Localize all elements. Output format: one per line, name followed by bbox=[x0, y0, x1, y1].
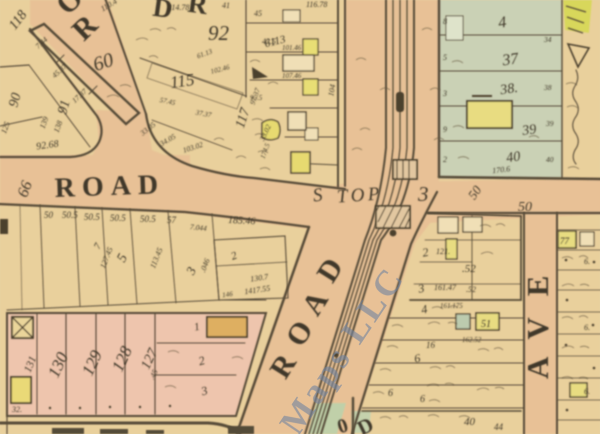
svg-text:5: 5 bbox=[443, 53, 447, 62]
svg-text:170.6: 170.6 bbox=[492, 164, 511, 175]
svg-text:.52: .52 bbox=[462, 263, 476, 275]
svg-text:51: 51 bbox=[481, 319, 491, 330]
svg-text:50.5: 50.5 bbox=[140, 214, 156, 224]
svg-text:AVE: AVE bbox=[520, 255, 555, 379]
svg-text:50.5: 50.5 bbox=[110, 213, 126, 223]
svg-text:107.46: 107.46 bbox=[282, 72, 302, 80]
svg-text:TOP: TOP bbox=[336, 183, 383, 207]
svg-text:39: 39 bbox=[520, 122, 537, 139]
svg-text:38.: 38. bbox=[498, 81, 518, 98]
svg-text:7.044: 7.044 bbox=[190, 222, 208, 233]
svg-text:16: 16 bbox=[426, 340, 436, 350]
svg-text:40: 40 bbox=[546, 155, 554, 164]
svg-text:8: 8 bbox=[443, 17, 447, 26]
svg-text:9: 9 bbox=[443, 125, 447, 134]
svg-text:43.5: 43.5 bbox=[262, 37, 276, 46]
svg-text:6.: 6. bbox=[584, 323, 590, 332]
svg-text:39: 39 bbox=[545, 119, 554, 128]
svg-text:45: 45 bbox=[254, 9, 262, 18]
svg-text:161.175: 161.175 bbox=[440, 302, 463, 310]
svg-text:3: 3 bbox=[442, 89, 447, 98]
svg-text:6: 6 bbox=[388, 388, 393, 399]
svg-text:95.5: 95.5 bbox=[250, 94, 263, 102]
svg-text:185.46: 185.46 bbox=[228, 215, 256, 227]
svg-text:38: 38 bbox=[543, 83, 552, 92]
svg-text:32.: 32. bbox=[11, 405, 22, 414]
svg-text:50: 50 bbox=[518, 200, 532, 215]
svg-text:6.: 6. bbox=[584, 257, 590, 266]
svg-text:40: 40 bbox=[464, 416, 476, 428]
svg-text:161.47: 161.47 bbox=[434, 283, 457, 292]
svg-text:50.5: 50.5 bbox=[84, 212, 100, 222]
svg-text:50.5: 50.5 bbox=[62, 210, 78, 220]
svg-text:2: 2 bbox=[443, 155, 447, 164]
svg-text:3: 3 bbox=[417, 182, 429, 206]
svg-text:92: 92 bbox=[208, 21, 230, 45]
svg-text:44: 44 bbox=[494, 422, 504, 432]
svg-text:77: 77 bbox=[560, 236, 570, 246]
svg-text:146: 146 bbox=[222, 290, 234, 299]
svg-text:115: 115 bbox=[169, 70, 196, 92]
svg-text:.52: .52 bbox=[466, 285, 476, 294]
svg-text:41: 41 bbox=[222, 1, 230, 10]
svg-text:6: 6 bbox=[420, 394, 425, 405]
svg-text:114.78: 114.78 bbox=[168, 3, 189, 12]
svg-text:34: 34 bbox=[543, 35, 552, 44]
svg-text:50: 50 bbox=[44, 210, 54, 220]
svg-text:121.: 121. bbox=[436, 247, 450, 256]
svg-text:6.: 6. bbox=[584, 387, 590, 396]
svg-text:37: 37 bbox=[500, 50, 520, 69]
svg-text:57: 57 bbox=[167, 215, 177, 225]
svg-text:162.52: 162.52 bbox=[462, 336, 482, 344]
svg-text:ROAD: ROAD bbox=[54, 169, 165, 204]
svg-text:116.78: 116.78 bbox=[306, 0, 327, 9]
svg-text:101.46: 101.46 bbox=[282, 44, 302, 52]
